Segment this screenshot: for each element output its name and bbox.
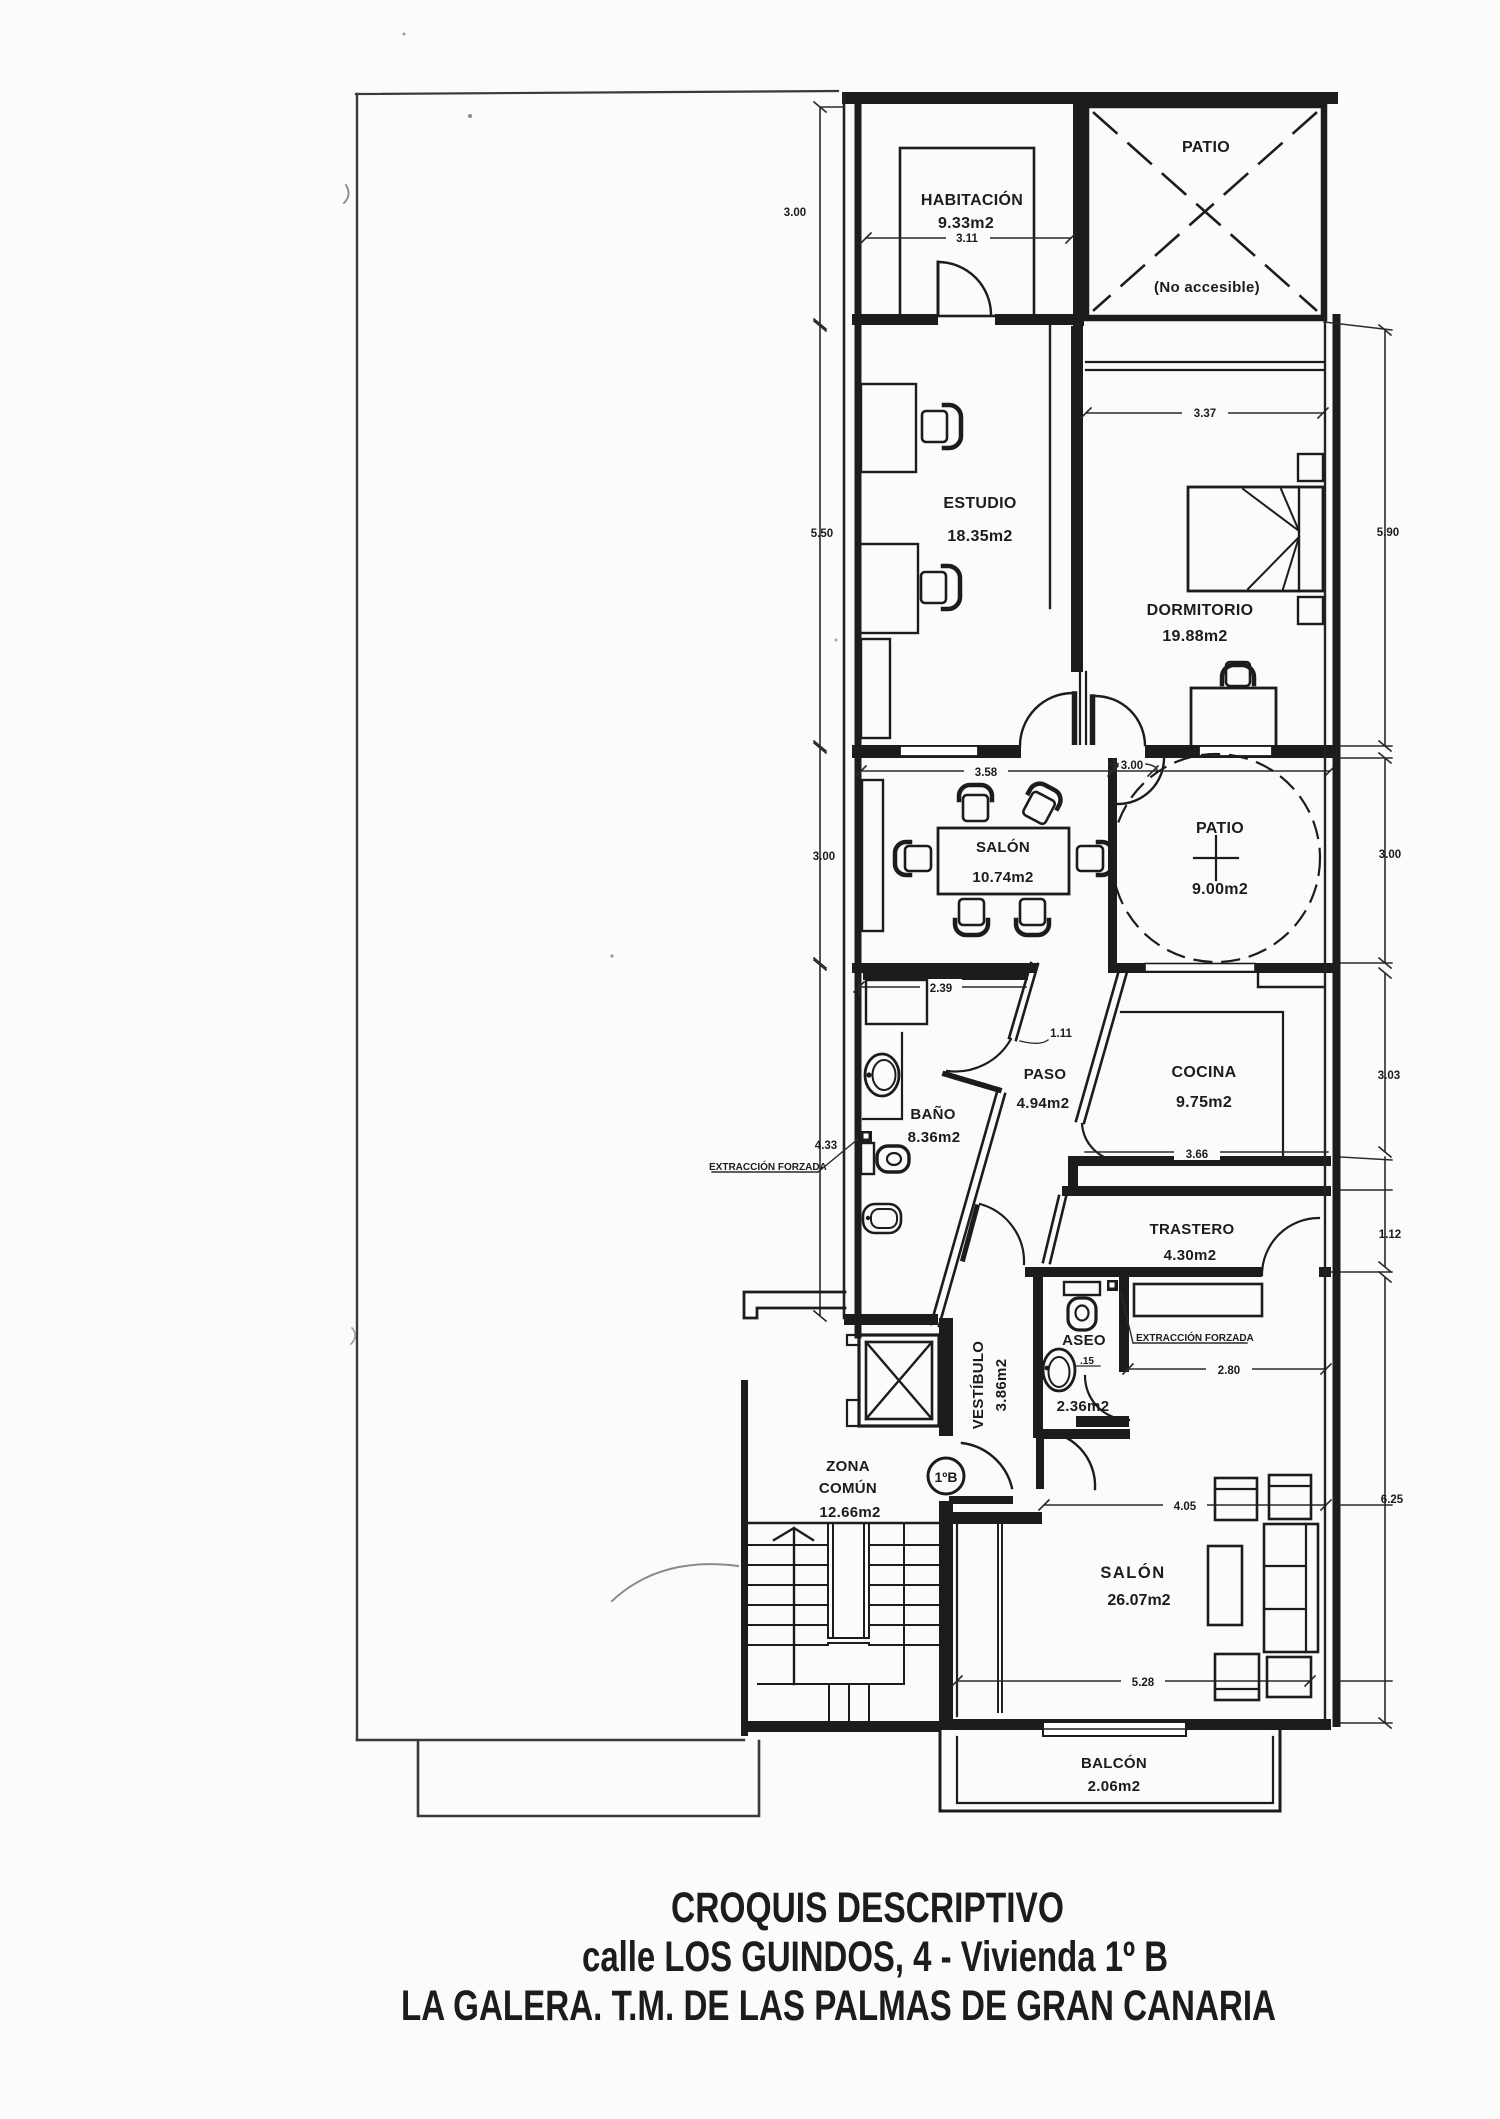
svg-text:26.07m2: 26.07m2 — [1107, 1592, 1170, 1609]
svg-text:1.12: 1.12 — [1379, 1229, 1401, 1241]
svg-text:BALCÓN: BALCÓN — [1081, 1754, 1147, 1772]
svg-text:2.06m2: 2.06m2 — [1088, 1778, 1141, 1795]
svg-text:ESTUDIO: ESTUDIO — [943, 495, 1016, 512]
svg-text:5.90: 5.90 — [1377, 527, 1399, 539]
svg-text:ASEO: ASEO — [1062, 1332, 1106, 1349]
svg-text:3.00: 3.00 — [784, 207, 806, 219]
svg-text:3.03: 3.03 — [1378, 1070, 1400, 1082]
svg-text:3.86m2: 3.86m2 — [993, 1359, 1010, 1412]
svg-text:19.88m2: 19.88m2 — [1162, 628, 1227, 645]
svg-text:6.25: 6.25 — [1381, 1494, 1404, 1506]
svg-text:PATIO: PATIO — [1182, 139, 1230, 156]
svg-text:calle LOS GUINDOS, 4 - Viviend: calle LOS GUINDOS, 4 - Vivienda 1º B — [582, 1933, 1168, 1981]
svg-text:EXTRACCIÓN FORZADA: EXTRACCIÓN FORZADA — [709, 1160, 827, 1173]
svg-text:LA GALERA. T.M. DE LAS PALMAS: LA GALERA. T.M. DE LAS PALMAS DE GRAN CA… — [401, 1982, 1276, 2030]
svg-text:5.50: 5.50 — [811, 528, 833, 540]
svg-text:1.11: 1.11 — [1050, 1028, 1072, 1040]
svg-text:1ºB: 1ºB — [934, 1469, 957, 1485]
svg-text:4.94m2: 4.94m2 — [1017, 1095, 1070, 1112]
svg-text:3.37: 3.37 — [1194, 408, 1216, 420]
svg-text:PATIO: PATIO — [1196, 820, 1244, 837]
svg-text:3.66: 3.66 — [1186, 1149, 1208, 1161]
svg-text:5.28: 5.28 — [1132, 1677, 1155, 1689]
svg-text:4.33: 4.33 — [815, 1140, 837, 1152]
svg-text:12.66m2: 12.66m2 — [819, 1504, 880, 1521]
svg-text:3.58: 3.58 — [975, 767, 998, 779]
svg-text:ZONA: ZONA — [826, 1458, 870, 1475]
svg-text:EXTRACCIÓN FORZADA: EXTRACCIÓN FORZADA — [1136, 1331, 1254, 1344]
svg-text:18.35m2: 18.35m2 — [947, 528, 1012, 545]
svg-text:3.00: 3.00 — [1379, 849, 1401, 861]
svg-text:CROQUIS DESCRIPTIVO: CROQUIS DESCRIPTIVO — [671, 1884, 1064, 1932]
svg-text:SALÓN: SALÓN — [976, 838, 1030, 856]
svg-text:PASO: PASO — [1024, 1066, 1067, 1083]
svg-text:4.05: 4.05 — [1174, 1501, 1197, 1513]
svg-text:10.74m2: 10.74m2 — [972, 869, 1033, 886]
svg-text:BAÑO: BAÑO — [910, 1105, 955, 1123]
svg-text:(No accesible): (No accesible) — [1154, 279, 1260, 296]
svg-text:COCINA: COCINA — [1172, 1064, 1237, 1081]
svg-text:4.30m2: 4.30m2 — [1164, 1247, 1217, 1264]
svg-text:3.00: 3.00 — [813, 851, 835, 863]
svg-text:2.39: 2.39 — [930, 983, 952, 995]
svg-text:8.36m2: 8.36m2 — [908, 1129, 961, 1146]
svg-text:COMÚN: COMÚN — [819, 1479, 877, 1497]
svg-text:2.36m2: 2.36m2 — [1057, 1398, 1110, 1415]
svg-text:SALÓN: SALÓN — [1100, 1563, 1165, 1582]
svg-text:2.80: 2.80 — [1218, 1365, 1240, 1377]
svg-text:9.75m2: 9.75m2 — [1176, 1094, 1232, 1111]
svg-text:HABITACIÓN: HABITACIÓN — [921, 190, 1023, 209]
svg-text:DORMITORIO: DORMITORIO — [1147, 602, 1254, 619]
svg-text:9.00m2: 9.00m2 — [1192, 881, 1248, 898]
svg-text:TRASTERO: TRASTERO — [1150, 1221, 1235, 1238]
svg-text:3.11: 3.11 — [956, 233, 978, 245]
svg-text:VESTÍBULO: VESTÍBULO — [970, 1341, 987, 1430]
